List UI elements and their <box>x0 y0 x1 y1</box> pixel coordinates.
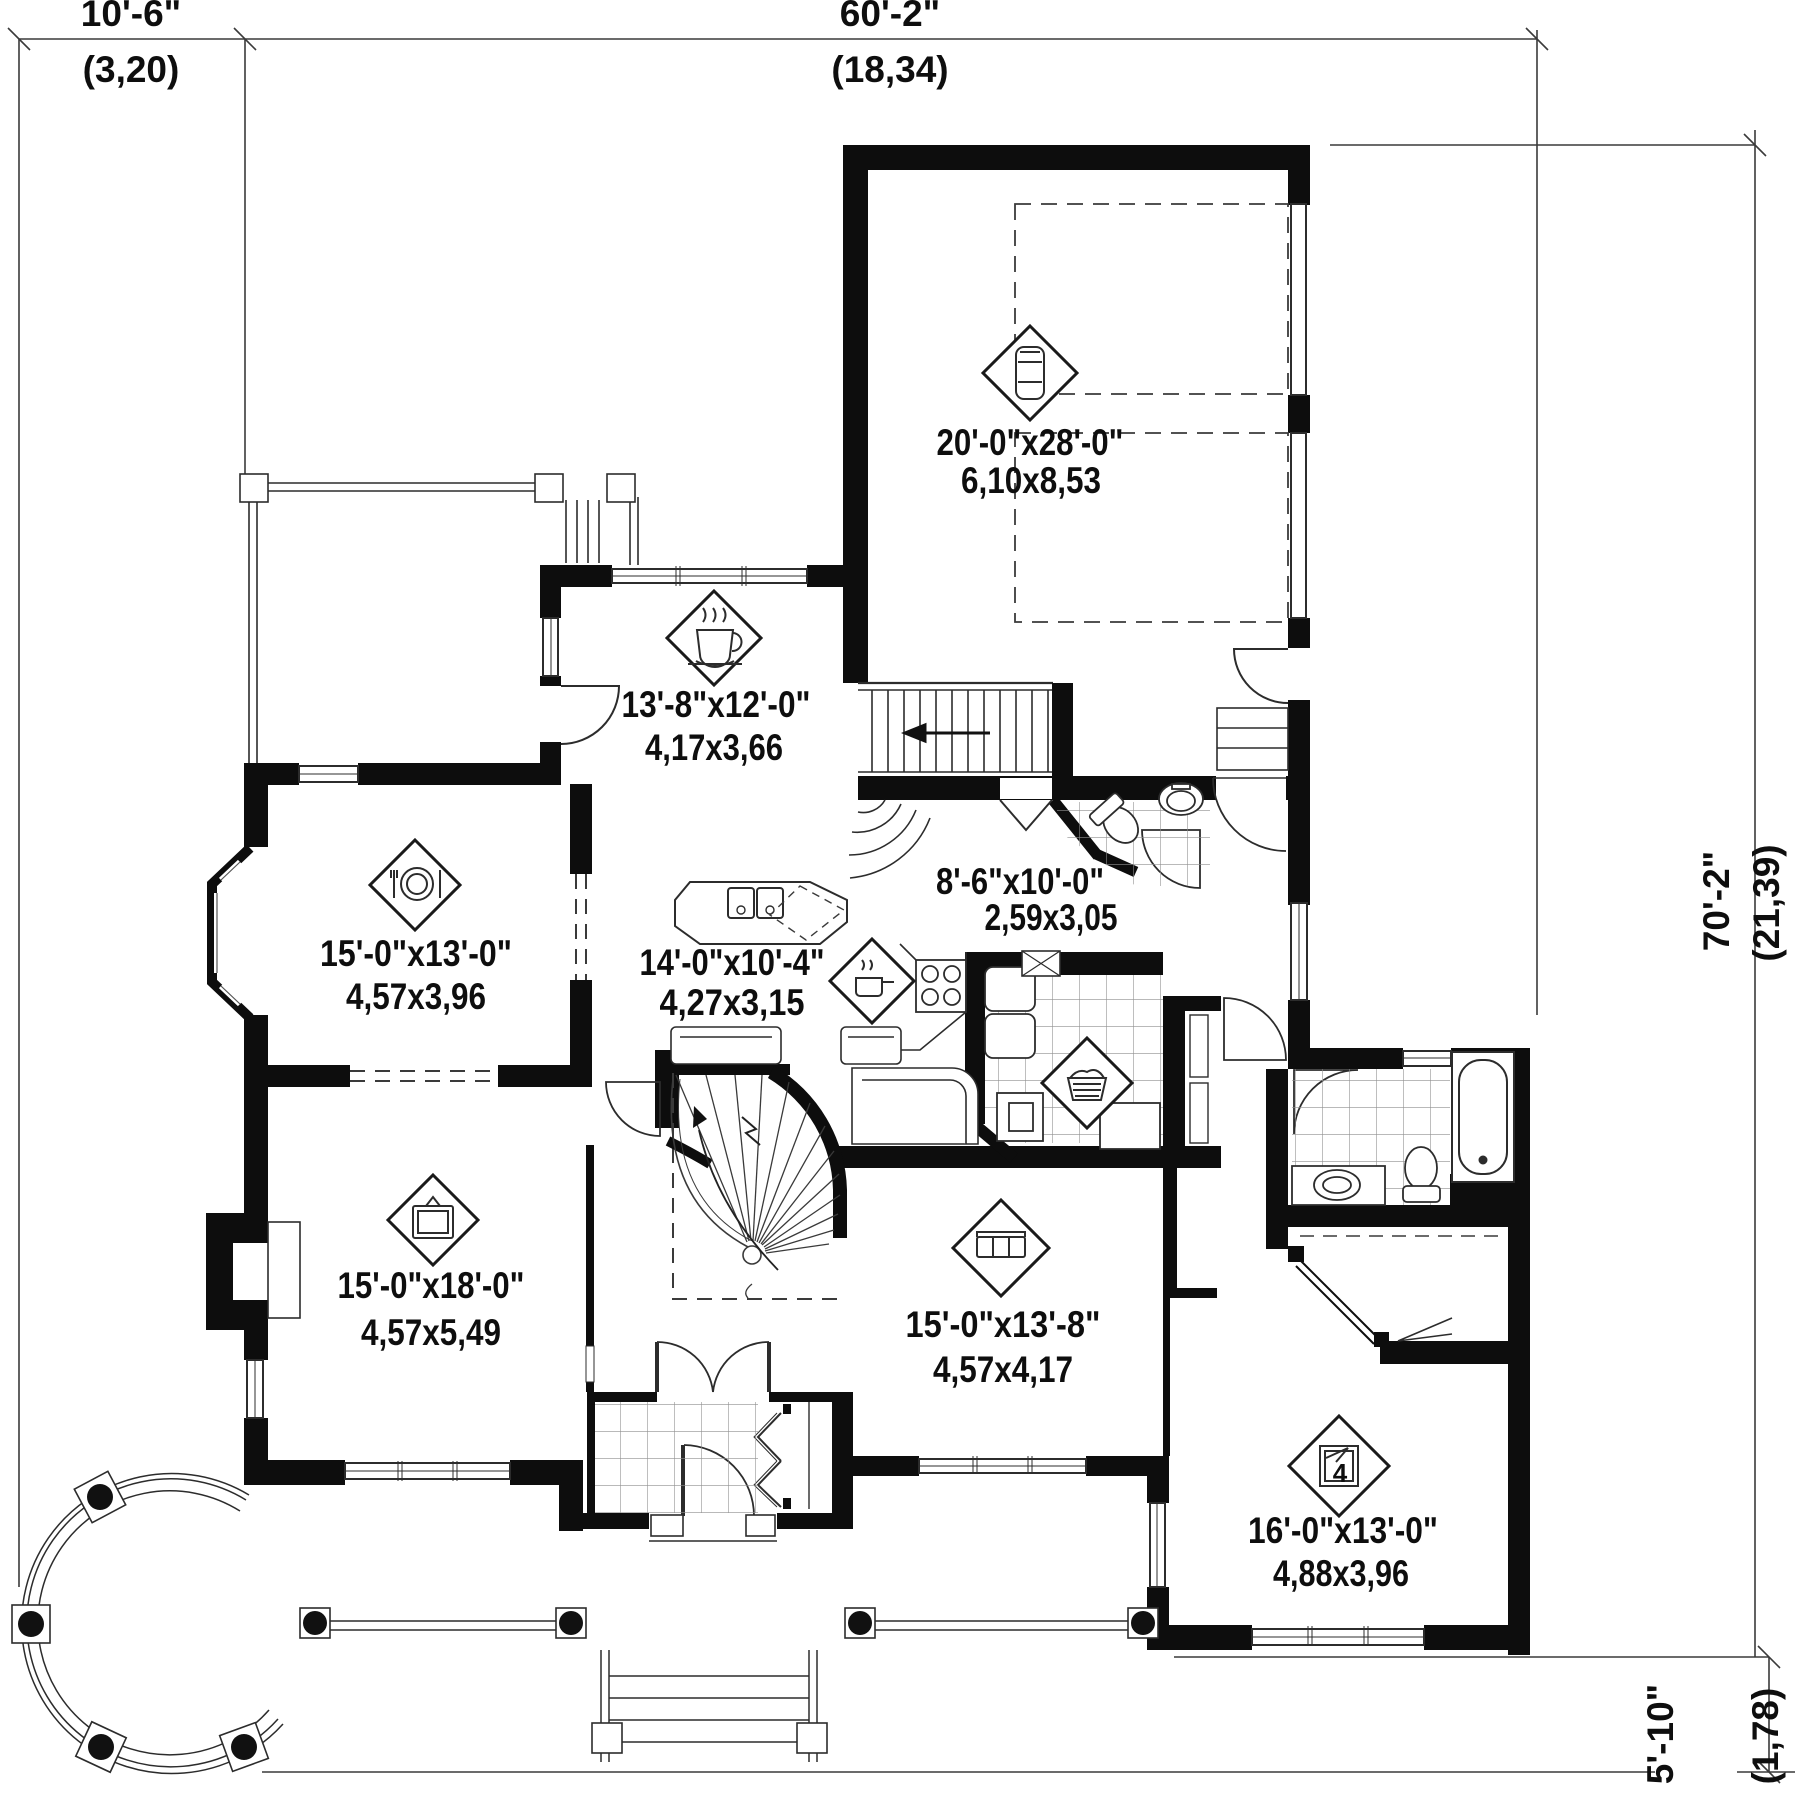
svg-text:(1,78): (1,78) <box>1745 1688 1786 1785</box>
svg-text:2,59x3,05: 2,59x3,05 <box>985 897 1118 938</box>
svg-text:4,17x3,66: 4,17x3,66 <box>645 727 783 768</box>
svg-text:5'-10": 5'-10" <box>1640 1684 1681 1784</box>
svg-text:4,57x5,49: 4,57x5,49 <box>361 1312 501 1353</box>
svg-text:4: 4 <box>1333 1458 1348 1488</box>
svg-text:20'-0"x28'-0": 20'-0"x28'-0" <box>937 422 1124 463</box>
svg-text:(3,20): (3,20) <box>83 49 180 90</box>
svg-text:4,57x4,17: 4,57x4,17 <box>933 1349 1073 1390</box>
svg-text:4,57x3,96: 4,57x3,96 <box>346 976 486 1017</box>
svg-text:15'-0"x13'-0": 15'-0"x13'-0" <box>320 933 512 974</box>
svg-text:10'-6": 10'-6" <box>81 0 181 34</box>
svg-text:60'-2": 60'-2" <box>840 0 940 34</box>
svg-text:4,27x3,15: 4,27x3,15 <box>660 982 805 1023</box>
svg-text:15'-0"x18'-0": 15'-0"x18'-0" <box>338 1265 525 1306</box>
svg-text:14'-0"x10'-4": 14'-0"x10'-4" <box>640 942 825 983</box>
svg-text:(18,34): (18,34) <box>831 49 948 90</box>
svg-text:4,88x3,96: 4,88x3,96 <box>1273 1553 1409 1594</box>
svg-text:(21,39): (21,39) <box>1746 844 1787 961</box>
svg-text:15'-0"x13'-8": 15'-0"x13'-8" <box>906 1304 1101 1345</box>
svg-text:8'-6"x10'-0": 8'-6"x10'-0" <box>936 861 1104 902</box>
svg-text:6,10x8,53: 6,10x8,53 <box>961 460 1101 501</box>
svg-text:70'-2": 70'-2" <box>1696 851 1737 951</box>
svg-text:16'-0"x13'-0": 16'-0"x13'-0" <box>1248 1510 1438 1551</box>
svg-text:13'-8"x12'-0": 13'-8"x12'-0" <box>622 684 811 725</box>
